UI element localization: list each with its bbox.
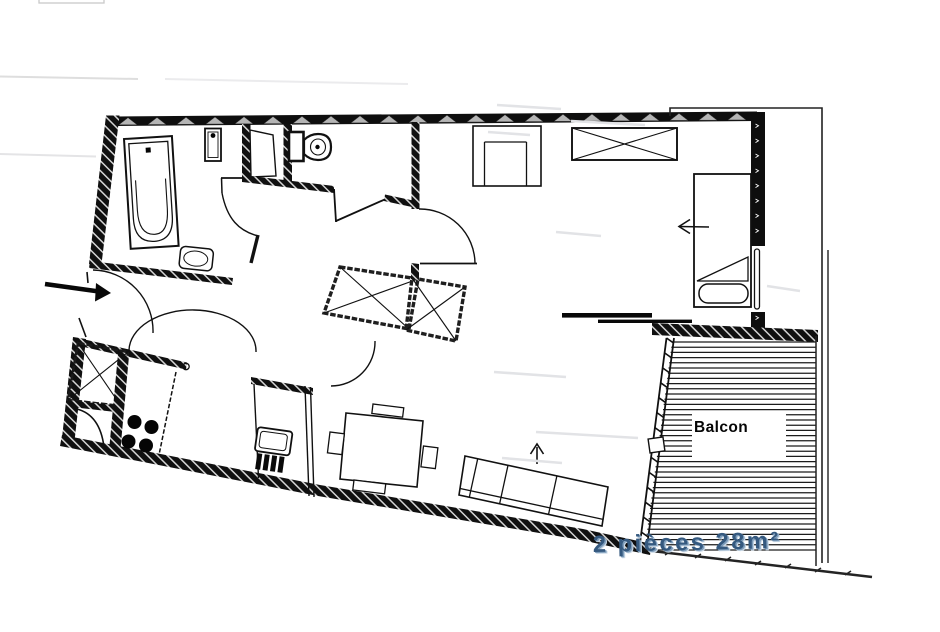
svg-text:2 pièces 28m²: 2 pièces 28m² bbox=[593, 527, 781, 557]
svg-text:Balcon: Balcon bbox=[694, 419, 748, 436]
